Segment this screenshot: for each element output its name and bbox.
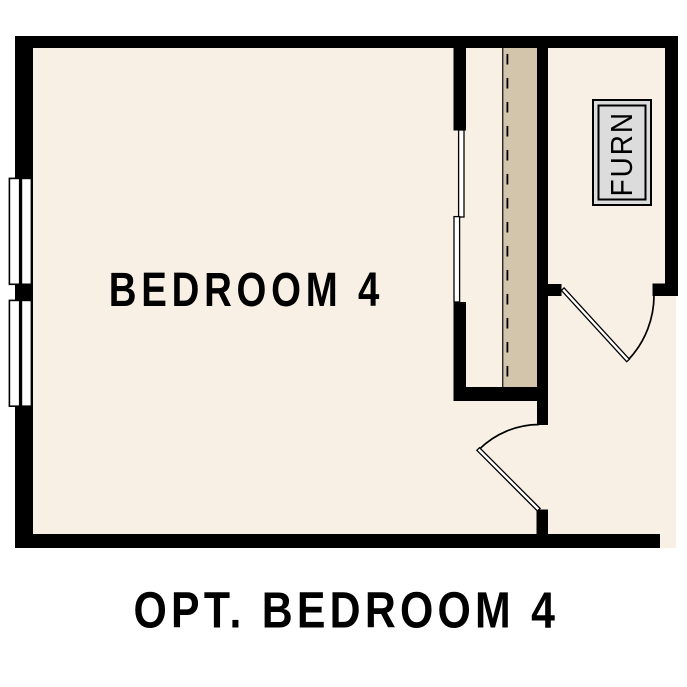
- svg-text:OPT. BEDROOM 4: OPT. BEDROOM 4: [133, 582, 559, 638]
- svg-text:BEDROOM 4: BEDROOM 4: [109, 264, 384, 317]
- svg-text:FURN: FURN: [605, 111, 640, 196]
